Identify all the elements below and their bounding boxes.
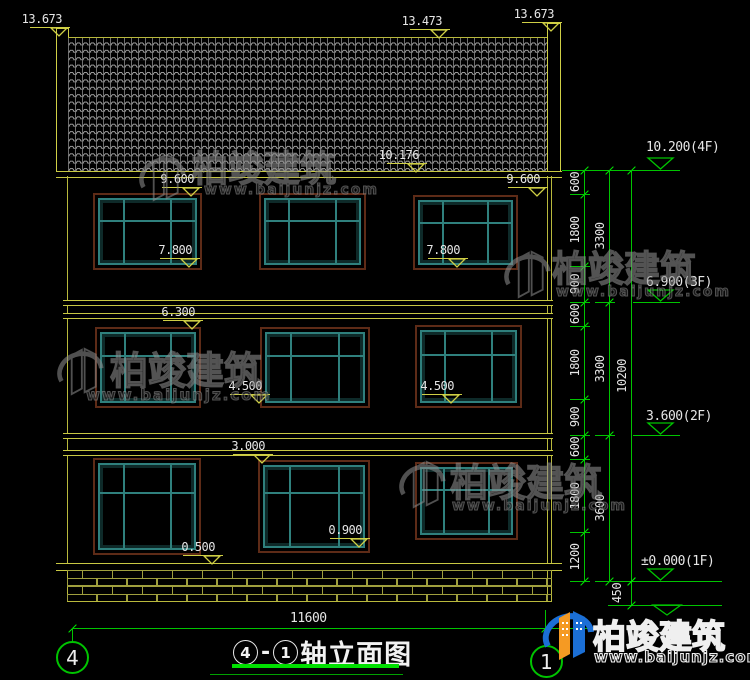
elev-label-f2_lintel: 6.300 bbox=[125, 305, 195, 319]
window-mullion bbox=[422, 489, 511, 491]
window-mullion bbox=[488, 469, 490, 533]
window-mullion bbox=[123, 465, 125, 548]
window bbox=[260, 327, 370, 408]
elev-triangle bbox=[442, 395, 460, 404]
wall-edge-left bbox=[67, 176, 68, 602]
window-mullion bbox=[170, 465, 172, 548]
dim-connector bbox=[562, 170, 633, 171]
dim-text: 3300 bbox=[593, 223, 607, 250]
window bbox=[95, 327, 201, 408]
dim-text: 1200 bbox=[568, 543, 582, 570]
dim-text: 1800 bbox=[568, 349, 582, 376]
dim-ext-stub bbox=[570, 435, 590, 436]
dim-chain-line bbox=[609, 170, 610, 581]
elev-label-f1_sill_r: 0.900 bbox=[292, 523, 362, 537]
slab-band-2f-bottom bbox=[63, 450, 553, 456]
dim-text: 1800 bbox=[568, 482, 582, 509]
elev-label-ridge_left: 13.673 bbox=[0, 12, 62, 26]
dim-ext-stub bbox=[595, 435, 615, 436]
dim-text: 10200 bbox=[615, 359, 629, 393]
window-mullion bbox=[170, 334, 172, 401]
window bbox=[259, 193, 366, 270]
axis-bubble-left: 4 bbox=[56, 641, 89, 674]
elev-label-ridge_right: 13.673 bbox=[484, 7, 554, 21]
dim-ext-stub bbox=[570, 532, 590, 533]
elev-label-f3_lintel_r: 9.600 bbox=[470, 172, 540, 186]
title-axis-to: 1 bbox=[273, 640, 298, 665]
window-frame bbox=[98, 463, 196, 550]
window-mullion bbox=[422, 354, 515, 356]
elev-label-ridge_mid: 13.473 bbox=[372, 14, 442, 28]
window-frame bbox=[100, 332, 196, 403]
axis-line-left bbox=[72, 628, 73, 642]
window-mullion bbox=[289, 467, 291, 546]
window-mullion bbox=[338, 334, 340, 401]
elev-triangle bbox=[407, 164, 425, 173]
dim-ext-stub bbox=[570, 581, 590, 582]
wall-edge-right bbox=[547, 176, 548, 602]
dim-chain-line bbox=[584, 170, 585, 581]
window-frame bbox=[264, 198, 361, 265]
dim-ext-stub bbox=[570, 399, 590, 400]
window-mullion bbox=[100, 492, 194, 494]
level-label-L3: 6.900(3F) bbox=[646, 275, 712, 290]
elev-label-f1_lintel: 3.000 bbox=[195, 439, 265, 453]
window-mullion bbox=[335, 200, 337, 263]
overall-width-dim-text: 11600 bbox=[290, 611, 327, 626]
elev-triangle bbox=[50, 28, 68, 37]
dim-text: 600 bbox=[568, 437, 582, 457]
brick-plinth-hatch bbox=[67, 570, 552, 601]
elev-label-f1_sill_l: 0.500 bbox=[145, 540, 215, 554]
title-axis-from: 4 bbox=[233, 640, 258, 665]
elev-triangle bbox=[253, 455, 271, 464]
window-mullion bbox=[266, 220, 359, 222]
dim-chain-line bbox=[631, 170, 632, 581]
window-mullion bbox=[265, 492, 363, 494]
dim-text: 900 bbox=[568, 274, 582, 294]
dim-text: 3600 bbox=[593, 495, 607, 522]
window bbox=[415, 325, 522, 408]
elevation-drawing-canvas: 13.67313.47313.67310.1769.6009.6007.8007… bbox=[0, 0, 750, 680]
elev-triangle bbox=[203, 556, 221, 565]
elev-label-f3_sill_l: 7.800 bbox=[122, 243, 192, 257]
window-mullion bbox=[443, 469, 445, 533]
level-line bbox=[633, 302, 680, 303]
elev-label-f3_sill_r: 7.800 bbox=[390, 243, 460, 257]
window bbox=[415, 462, 518, 540]
level-triangle bbox=[647, 569, 674, 581]
dim-ext-stub bbox=[617, 581, 637, 582]
dim-ext-stub bbox=[570, 326, 590, 327]
level-triangle bbox=[647, 423, 674, 435]
elev-triangle bbox=[180, 259, 198, 268]
dim-ext-stub bbox=[570, 266, 590, 267]
dim-ext-stub bbox=[570, 302, 590, 303]
elev-triangle bbox=[350, 539, 368, 548]
dim-text: 600 bbox=[568, 172, 582, 192]
title-underline-thin bbox=[210, 674, 403, 675]
wall-edge-right2 bbox=[551, 176, 552, 602]
elev-label-eave: 10.176 bbox=[349, 148, 419, 162]
window-mullion bbox=[288, 200, 290, 263]
dim-text: 900 bbox=[568, 407, 582, 427]
axis-bubble-left-label: 4 bbox=[66, 646, 79, 670]
level-line bbox=[633, 170, 680, 171]
window-mullion bbox=[487, 202, 489, 263]
overall-width-dim-line bbox=[72, 628, 613, 629]
title-underline-thick bbox=[232, 664, 399, 668]
level-label-L4: 10.200(4F) bbox=[646, 140, 719, 155]
window-frame bbox=[420, 467, 513, 535]
elev-triangle bbox=[448, 259, 466, 268]
window-mullion bbox=[491, 332, 493, 401]
dim-text: 3300 bbox=[593, 355, 607, 382]
brand-url: www.baijunjz.com bbox=[594, 648, 750, 666]
level-triangle bbox=[647, 290, 674, 302]
elev-triangle bbox=[430, 30, 448, 39]
elev-label-f2_sill_r: 4.500 bbox=[384, 379, 454, 393]
dim-ext-stub bbox=[595, 581, 615, 582]
dim-text: 1800 bbox=[568, 217, 582, 244]
brand-building-icon bbox=[542, 602, 594, 668]
title-dash: - bbox=[261, 640, 270, 665]
level-triangle bbox=[647, 158, 674, 170]
window-mullion bbox=[100, 220, 195, 222]
elev-triangle bbox=[542, 23, 560, 32]
elev-triangle bbox=[528, 188, 546, 197]
dim-ext-stub bbox=[570, 194, 590, 195]
window-mullion bbox=[290, 334, 292, 401]
wall-bottom-line bbox=[67, 601, 552, 602]
window-mullion bbox=[124, 334, 126, 401]
window-mullion bbox=[102, 355, 194, 357]
window-mullion bbox=[267, 355, 363, 357]
elev-triangle bbox=[183, 321, 201, 330]
elev-label-f2_sill_l: 4.500 bbox=[192, 379, 262, 393]
window-mullion bbox=[420, 222, 511, 224]
level-label-L1: ±0.000(1F) bbox=[641, 554, 714, 569]
level-line bbox=[633, 435, 680, 436]
dim-text: 600 bbox=[568, 304, 582, 324]
dim-ext-stub bbox=[595, 302, 615, 303]
roof-parapet-right bbox=[547, 23, 561, 174]
elev-triangle bbox=[182, 188, 200, 197]
brand-logo: 柏竣建筑 www.baijunjz.com bbox=[540, 598, 750, 673]
elev-label-f3_lintel_l: 9.600 bbox=[124, 172, 194, 186]
level-label-L2: 3.600(2F) bbox=[646, 409, 712, 424]
elev-triangle bbox=[250, 395, 268, 404]
roof-tile-hatch bbox=[68, 37, 547, 172]
window-frame bbox=[265, 332, 365, 403]
dim-ext-stub bbox=[570, 459, 590, 460]
slab-band-2f-top bbox=[63, 433, 553, 439]
